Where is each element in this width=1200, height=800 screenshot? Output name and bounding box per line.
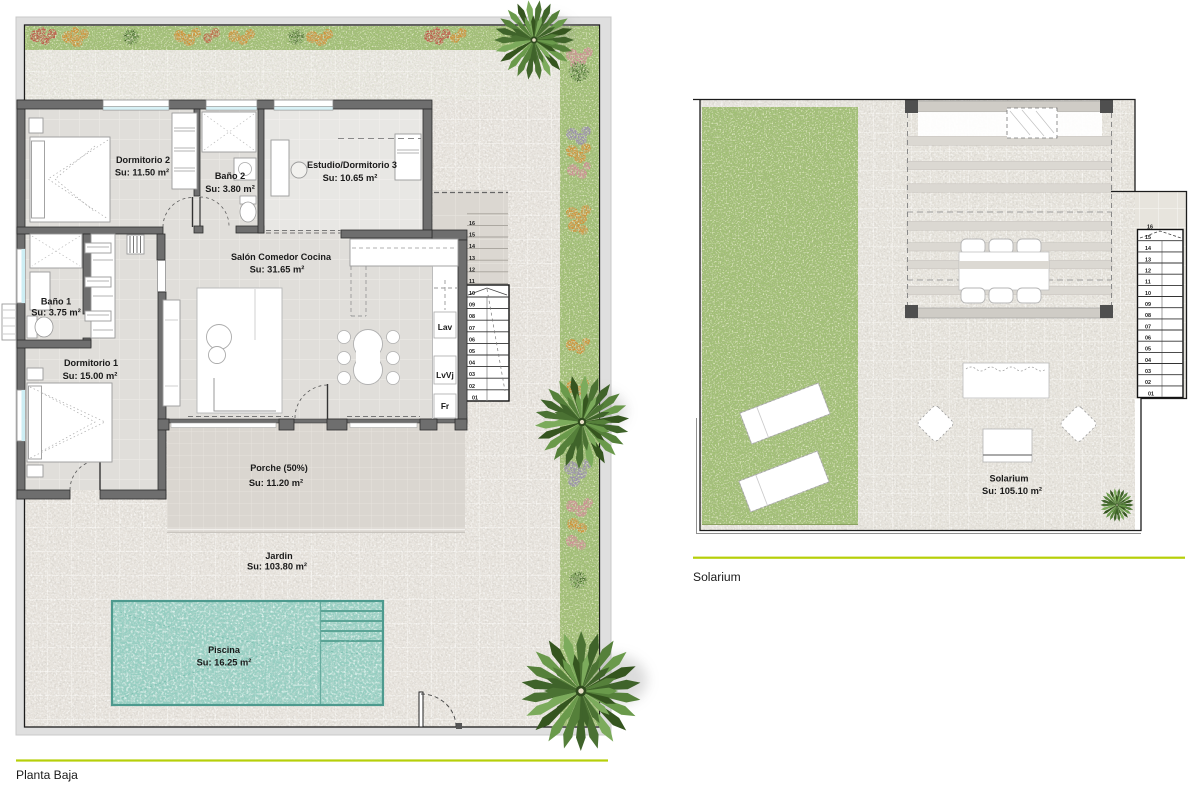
svg-text:13: 13 <box>1145 257 1151 263</box>
svg-text:10: 10 <box>469 291 475 297</box>
svg-text:Su: 16.25 m²: Su: 16.25 m² <box>197 658 252 668</box>
svg-text:05: 05 <box>1145 347 1151 353</box>
svg-text:03: 03 <box>1145 369 1151 375</box>
svg-text:Su: 105.10 m²: Su: 105.10 m² <box>982 486 1042 496</box>
svg-text:06: 06 <box>469 337 475 343</box>
svg-text:03: 03 <box>469 372 475 378</box>
svg-text:08: 08 <box>469 314 475 320</box>
svg-text:Su: 15.00 m²: Su: 15.00 m² <box>63 371 118 381</box>
svg-text:04: 04 <box>1145 358 1151 364</box>
svg-text:01: 01 <box>1148 391 1154 397</box>
svg-text:09: 09 <box>1145 302 1151 308</box>
svg-text:15: 15 <box>1145 235 1151 241</box>
svg-text:16: 16 <box>1147 225 1153 231</box>
svg-text:Salón Comedor Cocina: Salón Comedor Cocina <box>231 252 332 262</box>
svg-text:15: 15 <box>469 233 475 239</box>
svg-text:09: 09 <box>469 303 475 309</box>
svg-text:08: 08 <box>1145 313 1151 319</box>
svg-text:12: 12 <box>1145 269 1151 275</box>
svg-text:06: 06 <box>1145 336 1151 342</box>
svg-text:Planta Baja: Planta Baja <box>16 768 78 782</box>
svg-text:01: 01 <box>472 395 478 401</box>
svg-text:Su: 103.80 m²: Su: 103.80 m² <box>247 562 307 572</box>
svg-text:Lav: Lav <box>438 322 453 332</box>
svg-text:07: 07 <box>1145 324 1151 330</box>
svg-text:Solarium: Solarium <box>990 474 1029 484</box>
svg-text:Fr: Fr <box>441 401 450 411</box>
svg-text:14: 14 <box>1145 246 1151 252</box>
svg-text:Su: 11.50 m²: Su: 11.50 m² <box>115 168 169 178</box>
svg-text:Baño 2: Baño 2 <box>215 171 245 181</box>
svg-text:05: 05 <box>469 349 475 355</box>
svg-text:11: 11 <box>469 279 475 285</box>
svg-text:Su: 10.65 m²: Su: 10.65 m² <box>323 173 378 183</box>
svg-text:Su: 11.20 m²: Su: 11.20 m² <box>249 478 303 488</box>
svg-text:Dormitorio 1: Dormitorio 1 <box>64 358 118 368</box>
svg-text:Su: 3.80 m²: Su: 3.80 m² <box>205 184 255 194</box>
svg-text:11: 11 <box>1145 280 1151 286</box>
svg-text:02: 02 <box>1145 380 1151 386</box>
svg-text:Jardin: Jardin <box>265 551 292 561</box>
svg-text:02: 02 <box>469 384 475 390</box>
svg-text:Porche (50%): Porche (50%) <box>250 463 308 473</box>
svg-text:10: 10 <box>1145 291 1151 297</box>
svg-text:Estudio/Dormitorio 3: Estudio/Dormitorio 3 <box>307 160 397 170</box>
svg-text:LvVj: LvVj <box>436 370 454 380</box>
svg-text:04: 04 <box>469 361 475 367</box>
svg-text:Dormitorio 2: Dormitorio 2 <box>116 155 170 165</box>
svg-text:Su: 31.65 m²: Su: 31.65 m² <box>250 265 305 275</box>
svg-text:Piscina: Piscina <box>208 645 241 655</box>
svg-text:16: 16 <box>469 221 475 227</box>
svg-text:14: 14 <box>469 244 475 250</box>
svg-text:13: 13 <box>469 256 475 262</box>
svg-text:Su: 3.75 m²: Su: 3.75 m² <box>31 308 81 318</box>
svg-text:Solarium: Solarium <box>693 570 741 584</box>
svg-text:Baño 1: Baño 1 <box>41 297 71 307</box>
svg-text:07: 07 <box>469 326 475 332</box>
svg-text:12: 12 <box>469 267 475 273</box>
